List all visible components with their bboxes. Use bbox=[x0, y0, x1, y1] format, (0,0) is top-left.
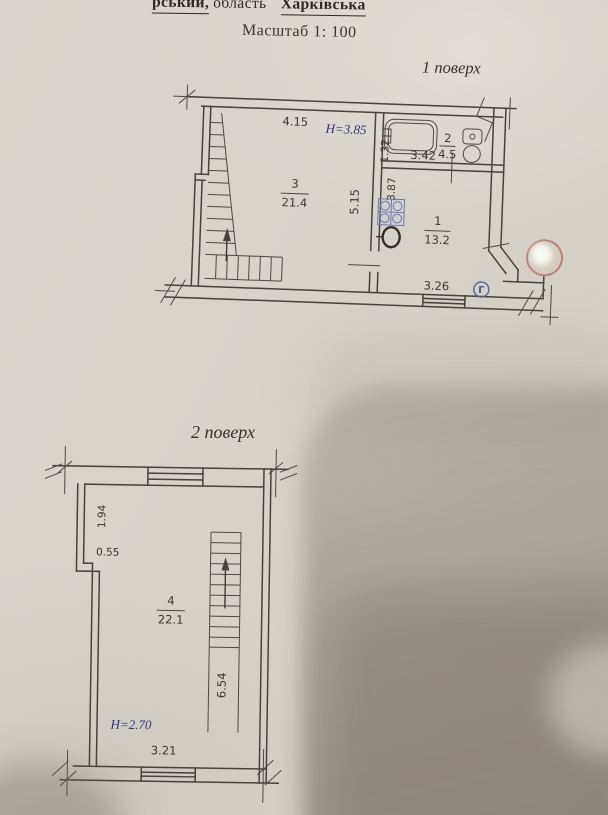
room1-fraction-line bbox=[424, 230, 450, 231]
room4-number: 4 bbox=[167, 593, 175, 607]
dim-bath-left: 1.32 bbox=[379, 139, 392, 163]
room3-number: 3 bbox=[291, 176, 299, 190]
stamp-circle bbox=[526, 240, 562, 276]
room4-area: 22.1 bbox=[158, 612, 184, 626]
dim-step: 0.55 bbox=[96, 546, 120, 558]
light-patch bbox=[548, 642, 608, 757]
dim-bath-width: 3.42 bbox=[410, 148, 436, 163]
gas-meter-icon: Г bbox=[474, 282, 490, 298]
phone-shadow bbox=[302, 386, 608, 815]
document-photo: рський,область Харківська Масштаб 1: 100… bbox=[0, 0, 608, 815]
dim-room3-width: 4.15 bbox=[282, 114, 308, 129]
floor2-dim-ticks bbox=[58, 446, 284, 498]
gas-meter-label: Г bbox=[478, 285, 484, 296]
scale-label: Масштаб 1: 100 bbox=[242, 22, 357, 42]
staircase-icon-floor2 bbox=[208, 532, 241, 732]
dim-bottom-width: 3.26 bbox=[423, 278, 449, 293]
floor1-plan: Г 4.15 H=3.85 1.32 3.42 2 4.5 3.87 5.15 … bbox=[150, 81, 579, 346]
dim-bottom-width-floor2: 3.21 bbox=[151, 743, 177, 757]
toilet-icon bbox=[462, 129, 482, 163]
district-name-fragment: рський, bbox=[152, 0, 209, 14]
region-name: Харківська bbox=[281, 0, 366, 16]
floor1-height-label: H=3.85 bbox=[324, 121, 367, 138]
room2-area: 4.5 bbox=[438, 147, 457, 162]
room2-number: 2 bbox=[444, 131, 452, 145]
dim-hall-height: 5.15 bbox=[347, 189, 362, 215]
stair-up-arrow-icon bbox=[222, 228, 231, 261]
floor1-title: 1 поверх bbox=[422, 57, 481, 78]
phone-shadow-core bbox=[330, 590, 608, 815]
staircase-icon bbox=[205, 112, 288, 281]
dim-kitchen-side: 3.87 bbox=[386, 177, 399, 201]
soft-shadow-top bbox=[305, 335, 608, 445]
document-header: рський,область Харківська bbox=[152, 0, 366, 14]
stove-icon bbox=[378, 199, 405, 226]
dim-left-top: 1.94 bbox=[96, 504, 108, 528]
room3-fraction-line bbox=[281, 193, 309, 194]
stair-up-arrow-icon-floor2 bbox=[221, 557, 230, 608]
header-word-oblast: область bbox=[213, 0, 267, 12]
dim-stair-height: 6.54 bbox=[214, 672, 228, 698]
room3-area: 21.4 bbox=[281, 195, 307, 210]
room1-number: 1 bbox=[434, 214, 442, 228]
room1-area: 13.2 bbox=[424, 232, 450, 247]
floor2-plan: 1.94 0.55 4 22.1 6.54 H=2.70 3.21 bbox=[40, 430, 301, 815]
floor2-height-label: H=2.70 bbox=[109, 717, 152, 733]
